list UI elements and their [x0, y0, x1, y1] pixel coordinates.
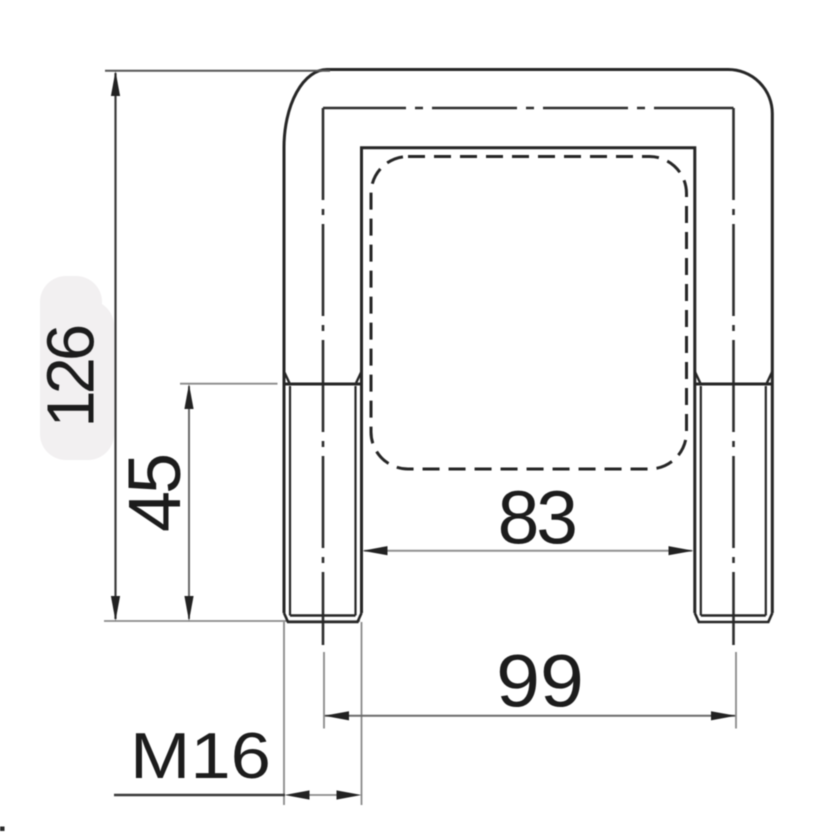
svg-text:M16: M16 — [130, 719, 271, 792]
svg-text:99: 99 — [496, 641, 584, 723]
svg-text:126: 126 — [34, 326, 109, 428]
svg-text:45: 45 — [113, 455, 196, 532]
svg-text:83: 83 — [498, 476, 576, 560]
